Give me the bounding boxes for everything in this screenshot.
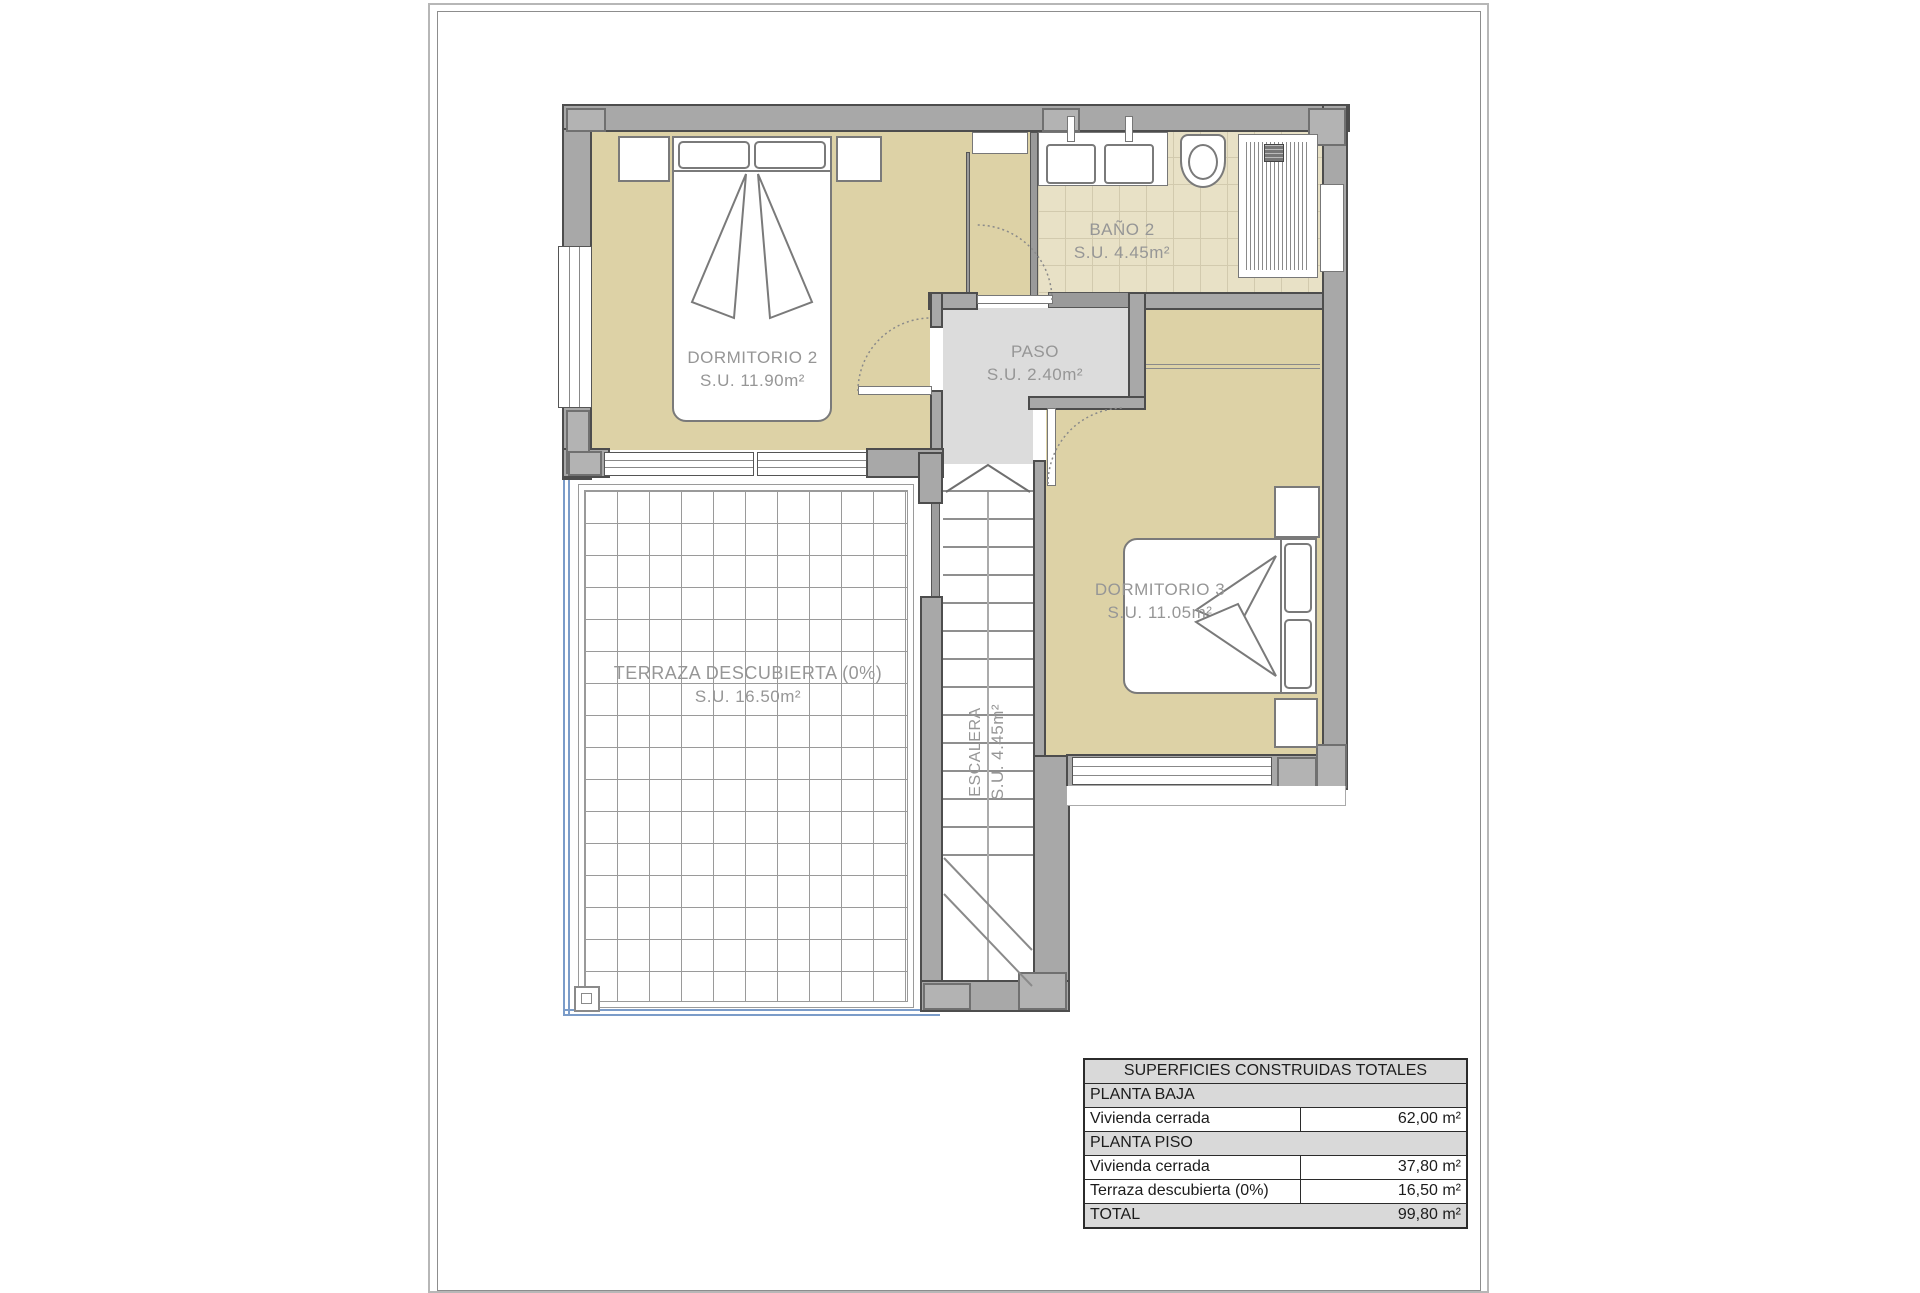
label-bano2-name: BAÑO 2 bbox=[1022, 218, 1222, 241]
table-row-planta-baja: PLANTA BAJA bbox=[1085, 1083, 1466, 1107]
row-value: 62,00 m² bbox=[1300, 1108, 1466, 1131]
label-terraza: TERRAZA DESCUBIERTA (0%) S.U. 16.50m² bbox=[570, 662, 926, 708]
table-row-vivienda-piso: Vivienda cerrada 37,80 m² bbox=[1085, 1155, 1466, 1179]
table-row-planta-piso: PLANTA PISO bbox=[1085, 1131, 1466, 1155]
row-value: 99,80 m² bbox=[1301, 1204, 1466, 1227]
surfaces-table-title-row: SUPERFICIES CONSTRUIDAS TOTALES bbox=[1085, 1060, 1466, 1083]
label-dormitorio2-name: DORMITORIO 2 bbox=[600, 346, 905, 369]
bed-dorm2-fold-left bbox=[692, 174, 746, 318]
label-bano2: BAÑO 2 S.U. 4.45m² bbox=[1022, 218, 1222, 264]
label-dormitorio2-area: S.U. 11.90m² bbox=[600, 369, 905, 392]
plan-linework bbox=[0, 0, 1920, 1280]
label-terraza-area: S.U. 16.50m² bbox=[570, 685, 926, 708]
label-dormitorio3-name: DORMITORIO 3 bbox=[1040, 578, 1280, 601]
row-label: PLANTA PISO bbox=[1085, 1132, 1466, 1155]
label-terraza-name: TERRAZA DESCUBIERTA (0%) bbox=[570, 662, 926, 685]
label-escalera: ESCALERA S.U. 4.45m² bbox=[965, 602, 1011, 902]
door-arc-dormitorio3 bbox=[1048, 408, 1124, 484]
row-value: 37,80 m² bbox=[1300, 1156, 1466, 1179]
bed-dorm2-fold-right bbox=[758, 174, 812, 318]
surfaces-table: SUPERFICIES CONSTRUIDAS TOTALES PLANTA B… bbox=[1083, 1058, 1468, 1229]
row-label: Vivienda cerrada bbox=[1085, 1156, 1300, 1179]
surfaces-table-title: SUPERFICIES CONSTRUIDAS TOTALES bbox=[1124, 1060, 1427, 1083]
row-label: Vivienda cerrada bbox=[1085, 1108, 1300, 1131]
row-value: 16,50 m² bbox=[1300, 1180, 1466, 1203]
stair-break-line-2 bbox=[944, 894, 1032, 986]
table-row-total: TOTAL 99,80 m² bbox=[1085, 1203, 1466, 1227]
label-paso: PASO S.U. 2.40m² bbox=[935, 340, 1135, 386]
label-paso-name: PASO bbox=[935, 340, 1135, 363]
row-label: TOTAL bbox=[1085, 1204, 1301, 1227]
label-dormitorio3-area: S.U. 11.05m² bbox=[1040, 601, 1280, 624]
table-row-terraza: Terraza descubierta (0%) 16,50 m² bbox=[1085, 1179, 1466, 1203]
row-label: Terraza descubierta (0%) bbox=[1085, 1180, 1300, 1203]
label-escalera-name: ESCALERA bbox=[965, 602, 987, 902]
label-dormitorio3: DORMITORIO 3 S.U. 11.05m² bbox=[1040, 578, 1280, 624]
floor-plan-page: DORMITORIO 2 S.U. 11.90m² BAÑO 2 S.U. 4.… bbox=[0, 0, 1920, 1280]
row-label: PLANTA BAJA bbox=[1085, 1084, 1466, 1107]
stair-direction-arrow-icon bbox=[946, 465, 1030, 492]
label-paso-area: S.U. 2.40m² bbox=[935, 363, 1135, 386]
label-escalera-area: S.U. 4.45m² bbox=[987, 602, 1009, 902]
label-dormitorio2: DORMITORIO 2 S.U. 11.90m² bbox=[600, 346, 905, 392]
table-row-vivienda-baja: Vivienda cerrada 62,00 m² bbox=[1085, 1107, 1466, 1131]
label-bano2-area: S.U. 4.45m² bbox=[1022, 241, 1222, 264]
